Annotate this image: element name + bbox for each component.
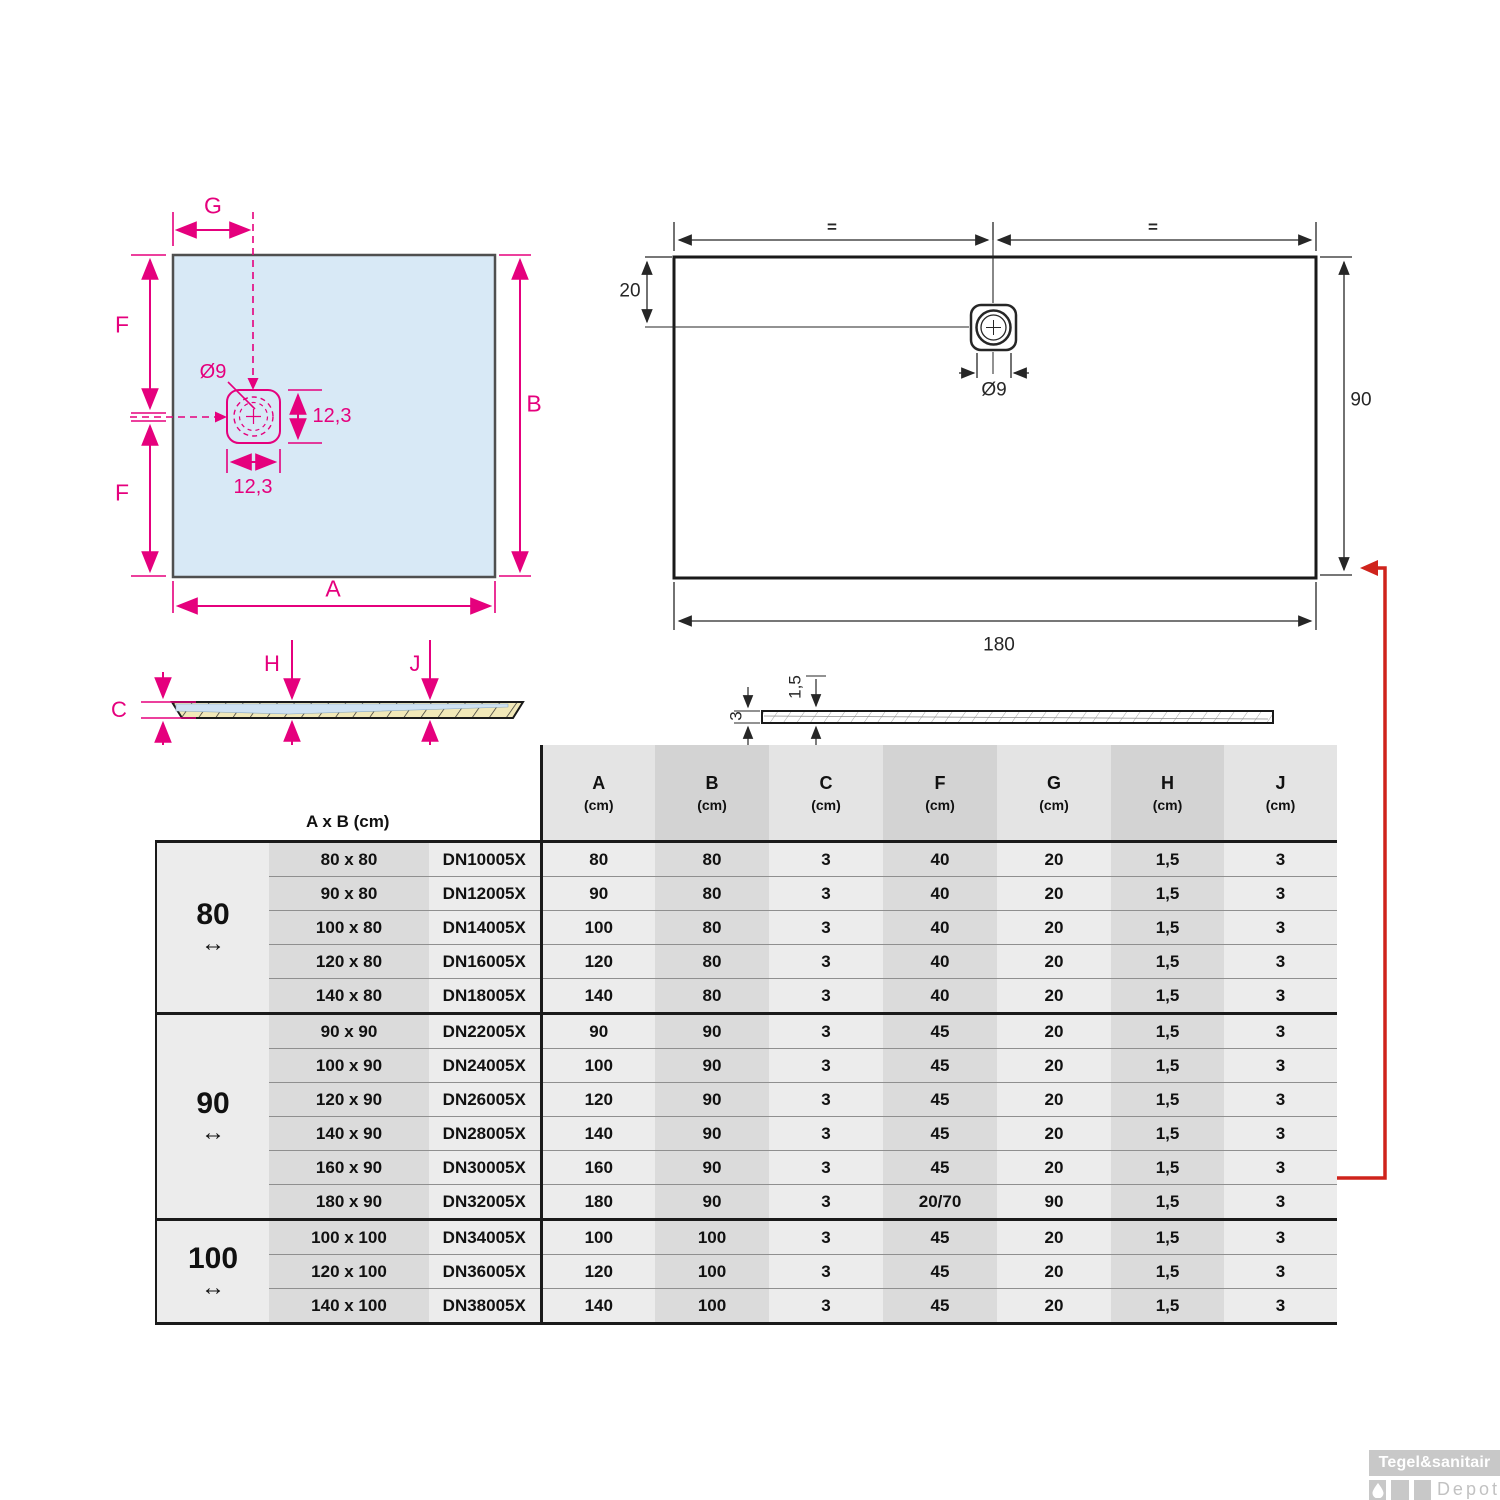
value-cell: 90 [655,1117,769,1151]
value-cell: 1,5 [1111,1014,1224,1049]
value-cell: 80 [655,911,769,945]
value-cell: 120 [541,945,655,979]
value-cell: 100 [655,1220,769,1255]
table-row: 120 x 90DN26005X12090345201,53 [156,1083,1337,1117]
value-cell: 3 [1224,1220,1337,1255]
product-code-cell: DN18005X [429,979,541,1014]
value-cell: 20 [997,1014,1111,1049]
table-row: 120 x 100DN36005X120100345201,53 [156,1255,1337,1289]
value-cell: 20 [997,945,1111,979]
watermark-sub-text: Depot [1437,1479,1500,1500]
value-cell: 3 [769,1083,883,1117]
value-cell: 40 [883,911,997,945]
group-label-cell-100: 100↔ [156,1220,269,1324]
dim-label-thickness-3: 3 [728,711,745,720]
dim-label-equal-left: = [827,219,837,236]
value-cell: 90 [997,1185,1111,1220]
corner-header-axb: A x B (cm) [156,745,541,842]
size-cell: 120 x 100 [269,1255,429,1289]
value-cell: 1,5 [1111,911,1224,945]
product-code-cell: DN16005X [429,945,541,979]
value-cell: 1,5 [1111,1049,1224,1083]
group-label-cell-90: 90↔ [156,1014,269,1220]
value-cell: 80 [655,842,769,877]
size-cell: 100 x 80 [269,911,429,945]
table-row: 90 x 80DN12005X9080340201,53 [156,877,1337,911]
size-cell: 120 x 80 [269,945,429,979]
product-code-cell: DN14005X [429,911,541,945]
value-cell: 3 [1224,1289,1337,1324]
value-cell: 1,5 [1111,1185,1224,1220]
value-cell: 3 [1224,1151,1337,1185]
dim-label-b: B [526,393,541,416]
value-cell: 1,5 [1111,945,1224,979]
size-cell: 90 x 80 [269,877,429,911]
value-cell: 40 [883,979,997,1014]
value-cell: 3 [1224,945,1337,979]
dim-label-h: H [264,653,280,675]
value-cell: 40 [883,945,997,979]
value-cell: 20 [997,842,1111,877]
value-cell: 45 [883,1117,997,1151]
value-cell: 3 [1224,1049,1337,1083]
dim-label-g: G [204,195,222,218]
dim-label-f-bottom: F [115,482,129,505]
table-row: 100↔100 x 100DN34005X100100345201,53 [156,1220,1337,1255]
value-cell: 3 [769,1289,883,1324]
value-cell: 45 [883,1255,997,1289]
col-header-G: G(cm) [997,745,1111,842]
dim-label-f-top: F [115,314,129,337]
col-header-B: B(cm) [655,745,769,842]
value-cell: 90 [655,1049,769,1083]
value-cell: 20 [997,1117,1111,1151]
left-right-arrow-icon: ↔ [157,1121,269,1145]
value-cell: 180 [541,1185,655,1220]
col-header-F: F(cm) [883,745,997,842]
value-cell: 3 [1224,842,1337,877]
product-code-cell: DN34005X [429,1220,541,1255]
value-cell: 20/70 [883,1185,997,1220]
table-row: 140 x 80DN18005X14080340201,53 [156,979,1337,1014]
value-cell: 3 [1224,1014,1337,1049]
value-cell: 100 [655,1255,769,1289]
size-cell: 140 x 80 [269,979,429,1014]
value-cell: 20 [997,877,1111,911]
product-code-cell: DN28005X [429,1117,541,1151]
dim-label-drain-diameter-square: Ø9 [200,362,227,382]
dim-label-width-180: 180 [983,636,1015,655]
left-right-arrow-icon: ↔ [157,932,269,956]
value-cell: 3 [1224,911,1337,945]
value-cell: 45 [883,1151,997,1185]
value-cell: 3 [769,1117,883,1151]
dim-label-drain-diameter-rect: Ø9 [981,381,1006,400]
size-cell: 80 x 80 [269,842,429,877]
water-drop-icon [1369,1480,1386,1500]
value-cell: 100 [541,911,655,945]
value-cell: 1,5 [1111,877,1224,911]
product-code-cell: DN36005X [429,1255,541,1289]
value-cell: 3 [769,1049,883,1083]
dim-label-drain-height: 12,3 [313,406,352,426]
value-cell: 90 [541,877,655,911]
dim-label-c: C [111,699,127,721]
value-cell: 1,5 [1111,1220,1224,1255]
value-cell: 100 [655,1289,769,1324]
value-cell: 45 [883,1289,997,1324]
product-code-cell: DN24005X [429,1049,541,1083]
size-cell: 140 x 90 [269,1117,429,1151]
value-cell: 90 [541,1014,655,1049]
group-label-cell-80: 80↔ [156,842,269,1014]
product-code-cell: DN26005X [429,1083,541,1117]
table-row: 100 x 80DN14005X10080340201,53 [156,911,1337,945]
value-cell: 45 [883,1014,997,1049]
value-cell: 20 [997,1289,1111,1324]
section-left-drawing [141,640,523,752]
section-right-drawing [734,676,1273,752]
value-cell: 40 [883,877,997,911]
dim-label-a: A [325,578,340,601]
size-cell: 120 x 90 [269,1083,429,1117]
value-cell: 3 [769,911,883,945]
value-cell: 100 [541,1049,655,1083]
value-cell: 80 [655,877,769,911]
size-cell: 140 x 100 [269,1289,429,1324]
value-cell: 120 [541,1255,655,1289]
value-cell: 3 [1224,1083,1337,1117]
value-cell: 1,5 [1111,1083,1224,1117]
value-cell: 100 [541,1220,655,1255]
dimension-spec-table: A x B (cm) A(cm)B(cm)C(cm)F(cm)G(cm)H(cm… [155,745,1337,1325]
value-cell: 20 [997,1255,1111,1289]
spec-table-body: 80↔80 x 80DN10005X8080340201,5390 x 80DN… [156,842,1337,1324]
table-row: 160 x 90DN30005X16090345201,53 [156,1151,1337,1185]
dim-label-depth-1-5: 1,5 [787,675,804,699]
value-cell: 3 [1224,1255,1337,1289]
value-cell: 80 [655,979,769,1014]
value-cell: 1,5 [1111,1255,1224,1289]
value-cell: 3 [769,877,883,911]
dim-label-j: J [410,653,421,675]
size-cell: 160 x 90 [269,1151,429,1185]
col-header-A: A(cm) [541,745,655,842]
value-cell: 1,5 [1111,979,1224,1014]
value-cell: 80 [655,945,769,979]
value-cell: 3 [1224,1185,1337,1220]
product-code-cell: DN12005X [429,877,541,911]
value-cell: 1,5 [1111,1289,1224,1324]
dim-label-offset-20: 20 [619,282,640,301]
value-cell: 3 [769,1255,883,1289]
product-code-cell: DN30005X [429,1151,541,1185]
col-header-C: C(cm) [769,745,883,842]
value-cell: 3 [769,842,883,877]
value-cell: 90 [655,1083,769,1117]
logo-square-icon [1414,1480,1431,1500]
value-cell: 3 [769,1220,883,1255]
size-cell: 180 x 90 [269,1185,429,1220]
value-cell: 3 [769,1185,883,1220]
product-code-cell: DN32005X [429,1185,541,1220]
plan-rect-drawing [645,222,1352,630]
value-cell: 1,5 [1111,842,1224,877]
value-cell: 20 [997,1049,1111,1083]
value-cell: 90 [655,1151,769,1185]
col-header-J: J(cm) [1224,745,1337,842]
value-cell: 140 [541,979,655,1014]
value-cell: 3 [1224,877,1337,911]
watermark-brand-text: Tegel&sanitair [1369,1450,1500,1476]
table-row: 140 x 100DN38005X140100345201,53 [156,1289,1337,1324]
value-cell: 3 [769,945,883,979]
table-row: 100 x 90DN24005X10090345201,53 [156,1049,1337,1083]
value-cell: 160 [541,1151,655,1185]
value-cell: 45 [883,1220,997,1255]
product-code-cell: DN38005X [429,1289,541,1324]
logo-square-icon [1391,1480,1408,1500]
value-cell: 3 [1224,1117,1337,1151]
dim-label-height-90: 90 [1350,391,1371,410]
value-cell: 90 [655,1185,769,1220]
shower-tray-spec-sheet: G F F B A Ø9 12,3 12,3 = = 20 Ø9 90 180 … [0,0,1500,1500]
value-cell: 40 [883,842,997,877]
value-cell: 3 [769,979,883,1014]
value-cell: 1,5 [1111,1151,1224,1185]
value-cell: 3 [769,1014,883,1049]
watermark-logo: Tegel&sanitair Depot [1369,1450,1500,1500]
size-cell: 100 x 90 [269,1049,429,1083]
value-cell: 140 [541,1289,655,1324]
table-row: 180 x 90DN32005X18090320/70901,53 [156,1185,1337,1220]
value-cell: 3 [1224,979,1337,1014]
dim-label-equal-right: = [1148,219,1158,236]
dim-label-drain-width: 12,3 [234,477,273,497]
value-cell: 140 [541,1117,655,1151]
col-header-H: H(cm) [1111,745,1224,842]
left-right-arrow-icon: ↔ [157,1276,269,1300]
value-cell: 45 [883,1083,997,1117]
value-cell: 20 [997,979,1111,1014]
value-cell: 45 [883,1049,997,1083]
value-cell: 120 [541,1083,655,1117]
size-cell: 100 x 100 [269,1220,429,1255]
product-code-cell: DN10005X [429,842,541,877]
table-row: 90↔90 x 90DN22005X9090345201,53 [156,1014,1337,1049]
product-code-cell: DN22005X [429,1014,541,1049]
value-cell: 90 [655,1014,769,1049]
table-row: 120 x 80DN16005X12080340201,53 [156,945,1337,979]
table-row: 80↔80 x 80DN10005X8080340201,53 [156,842,1337,877]
value-cell: 20 [997,911,1111,945]
value-cell: 20 [997,1151,1111,1185]
value-cell: 3 [769,1151,883,1185]
value-cell: 20 [997,1220,1111,1255]
value-cell: 1,5 [1111,1117,1224,1151]
size-cell: 90 x 90 [269,1014,429,1049]
table-row: 140 x 90DN28005X14090345201,53 [156,1117,1337,1151]
value-cell: 80 [541,842,655,877]
value-cell: 20 [997,1083,1111,1117]
spec-table-header-row: A x B (cm) A(cm)B(cm)C(cm)F(cm)G(cm)H(cm… [156,745,1337,842]
